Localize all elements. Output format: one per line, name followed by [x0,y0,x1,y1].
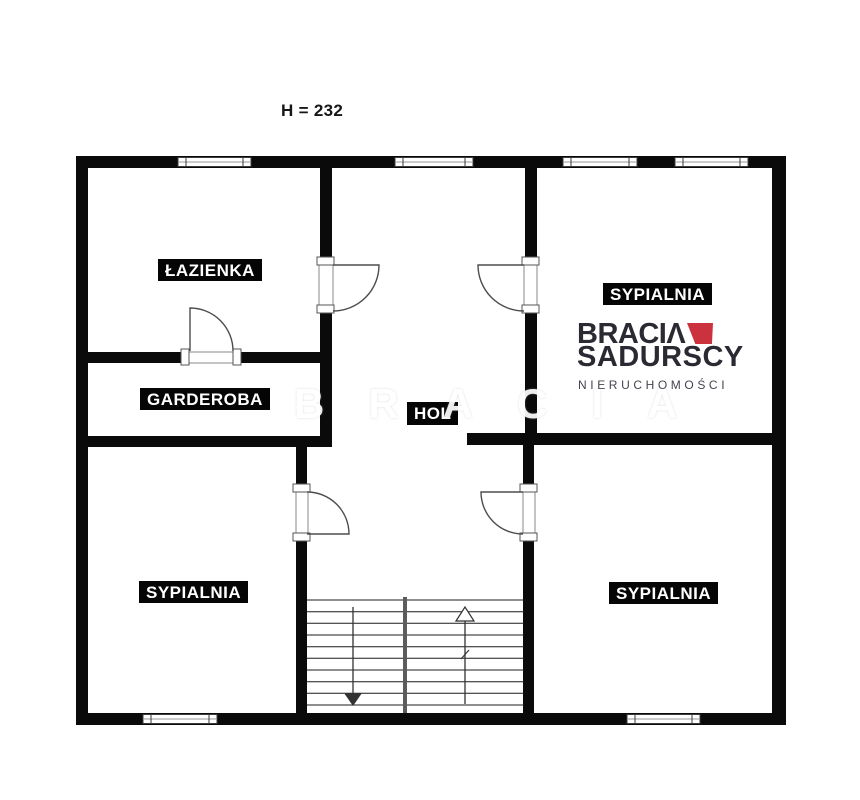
ceiling-height-label: H = 232 [281,101,343,121]
window-bedroom-bl-bottom [143,715,217,724]
wall-hall-right-lower [523,540,534,713]
wall-middle-left [88,436,332,447]
wall-outer-right [772,156,786,725]
floor-plan-drawing [0,0,860,800]
wall-outer-left [76,156,88,725]
wall-bathroom-right-upper [320,168,332,260]
window-bathroom-top [178,158,251,167]
inner-walls [88,168,772,713]
room-label-bedroom-bottom-right: SYPIALNIA [609,582,718,604]
wall-bedroom-tr-left-lower [525,312,537,434]
wall-bedroom-bl-right-lower [296,540,307,713]
room-label-hall: HOL [407,402,458,425]
logo-brand-line2: SADURSCY [577,345,744,370]
stair-arrow-up [456,607,474,704]
door-pocket-bedroom-br [523,492,535,533]
door-arc-wardrobe [190,308,233,351]
wall-middle-right [467,433,772,445]
door-arc-bedroom-br [481,492,523,534]
floorplan-page: H = 232 [0,0,860,800]
door-pocket-bathroom-hall [319,265,333,305]
wall-bathroom-bottom-left [88,352,185,363]
room-label-wardrobe: GARDEROBA [140,388,270,410]
room-label-bedroom-bottom-left: SYPIALNIA [139,581,248,603]
door-arc-bathroom-hall [333,265,379,311]
window-bedroom-tr-right [675,158,748,167]
wall-bathroom-bottom-right [237,352,332,363]
wall-bathroom-right-lower [320,310,332,447]
stair-arrow-down [344,607,362,706]
window-bedroom-tr-left [563,158,637,167]
door-arc-bedroom-bl [307,492,349,534]
wall-bedroom-tr-left-upper [525,168,537,260]
logo-tagline: NIERUCHOMOŚCI [578,379,728,392]
window-bedroom-br-bottom [627,715,700,724]
room-label-bathroom: ŁAZIENKA [158,259,262,281]
wall-hall-right-upper [523,445,534,488]
window-hall-top [395,158,473,167]
stair-treads [307,600,524,705]
door-pocket-bedroom-bl [296,492,308,533]
room-label-bedroom-top-right: SYPIALNIA [603,283,712,305]
wall-bedroom-bl-right-upper [296,447,307,488]
door-pocket-bedroom-tr [524,265,537,305]
door-arc-bedroom-tr [478,265,524,311]
staircase [307,597,524,713]
door-pocket-wardrobe [188,352,234,363]
agency-logo: BRACIΛ SADURSCY NIERUCHOMOŚCI [577,322,757,397]
